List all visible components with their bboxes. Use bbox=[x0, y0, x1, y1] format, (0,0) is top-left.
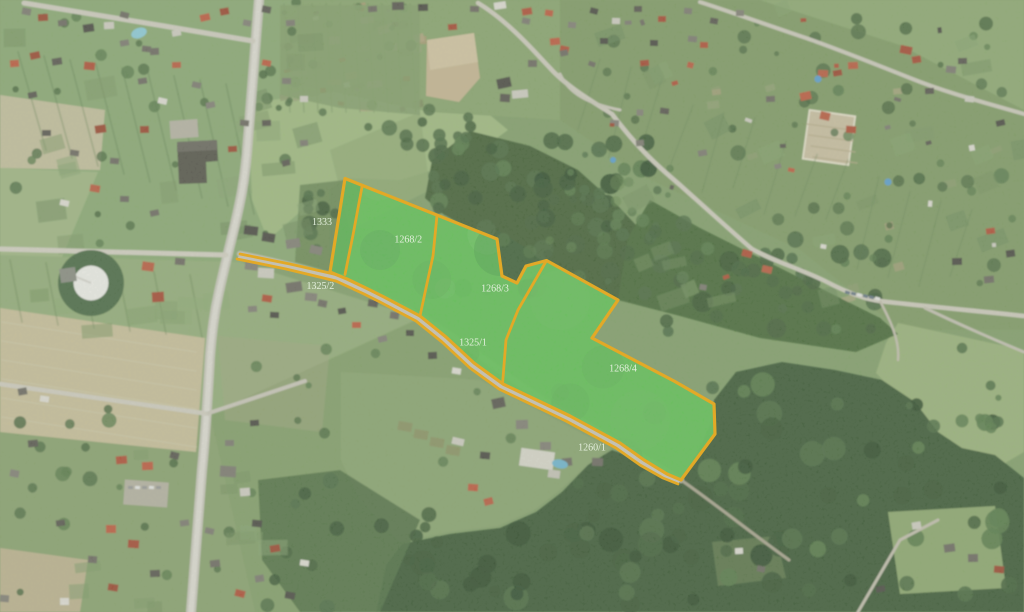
svg-text:1268/3: 1268/3 bbox=[481, 284, 509, 295]
svg-text:1268/2: 1268/2 bbox=[394, 235, 422, 246]
svg-text:1268/4: 1268/4 bbox=[609, 364, 637, 375]
svg-text:1325/1: 1325/1 bbox=[459, 338, 487, 349]
svg-text:1325/2: 1325/2 bbox=[307, 281, 335, 292]
svg-text:1260/1: 1260/1 bbox=[578, 443, 606, 454]
svg-text:1333: 1333 bbox=[312, 217, 332, 228]
